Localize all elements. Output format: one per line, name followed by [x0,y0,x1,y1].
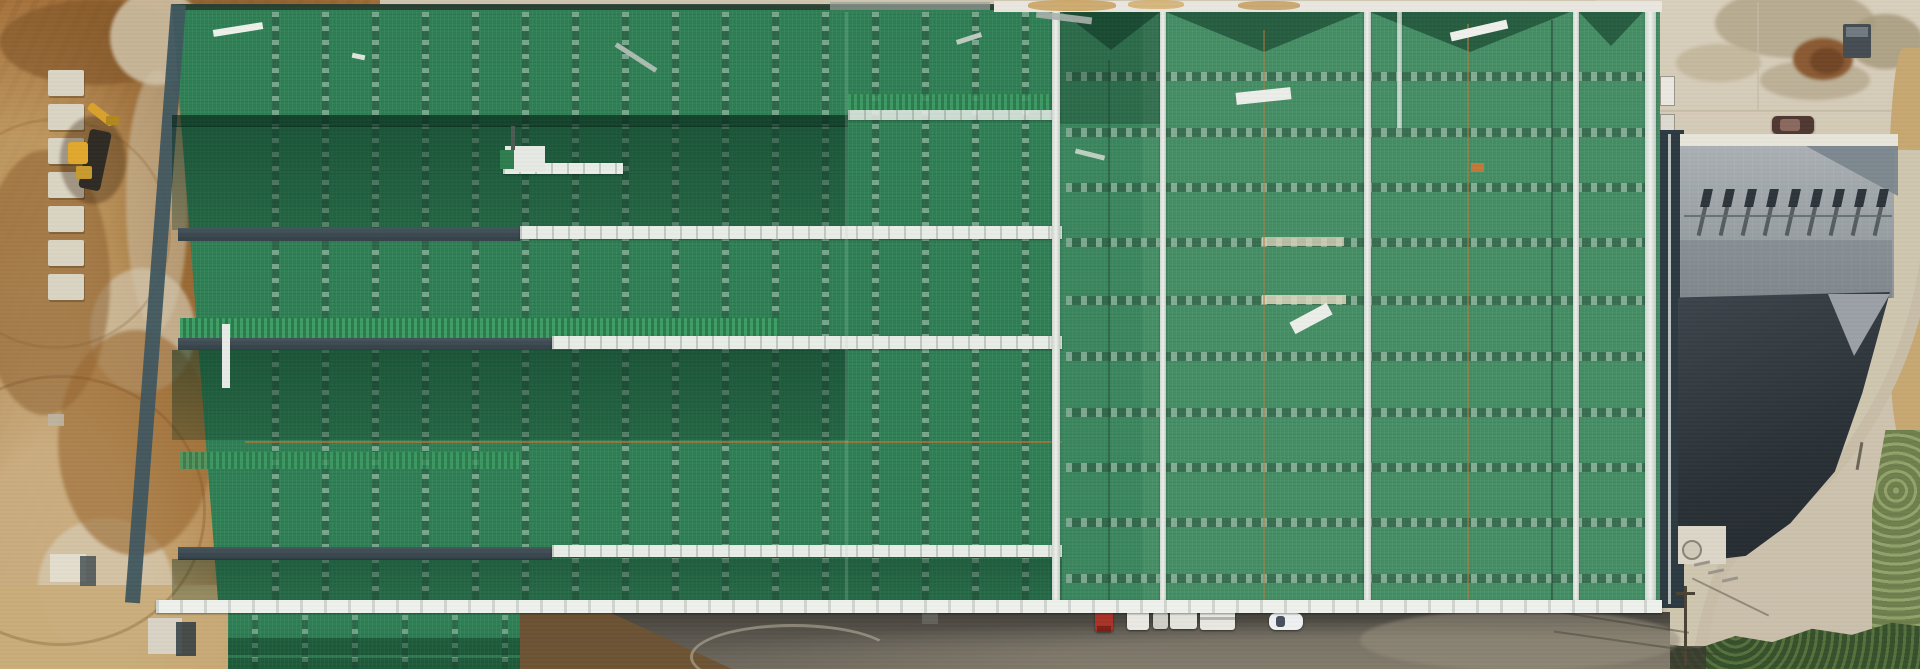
flashing-debris-2 [1128,0,1184,9]
roof-gutter [156,600,1662,613]
aerial-photo [0,0,1920,669]
roof-trim-layer [0,0,1920,669]
flashing-debris-3 [1238,1,1300,10]
west-top-metal [830,2,990,10]
flashing-debris-1 [1028,0,1116,11]
